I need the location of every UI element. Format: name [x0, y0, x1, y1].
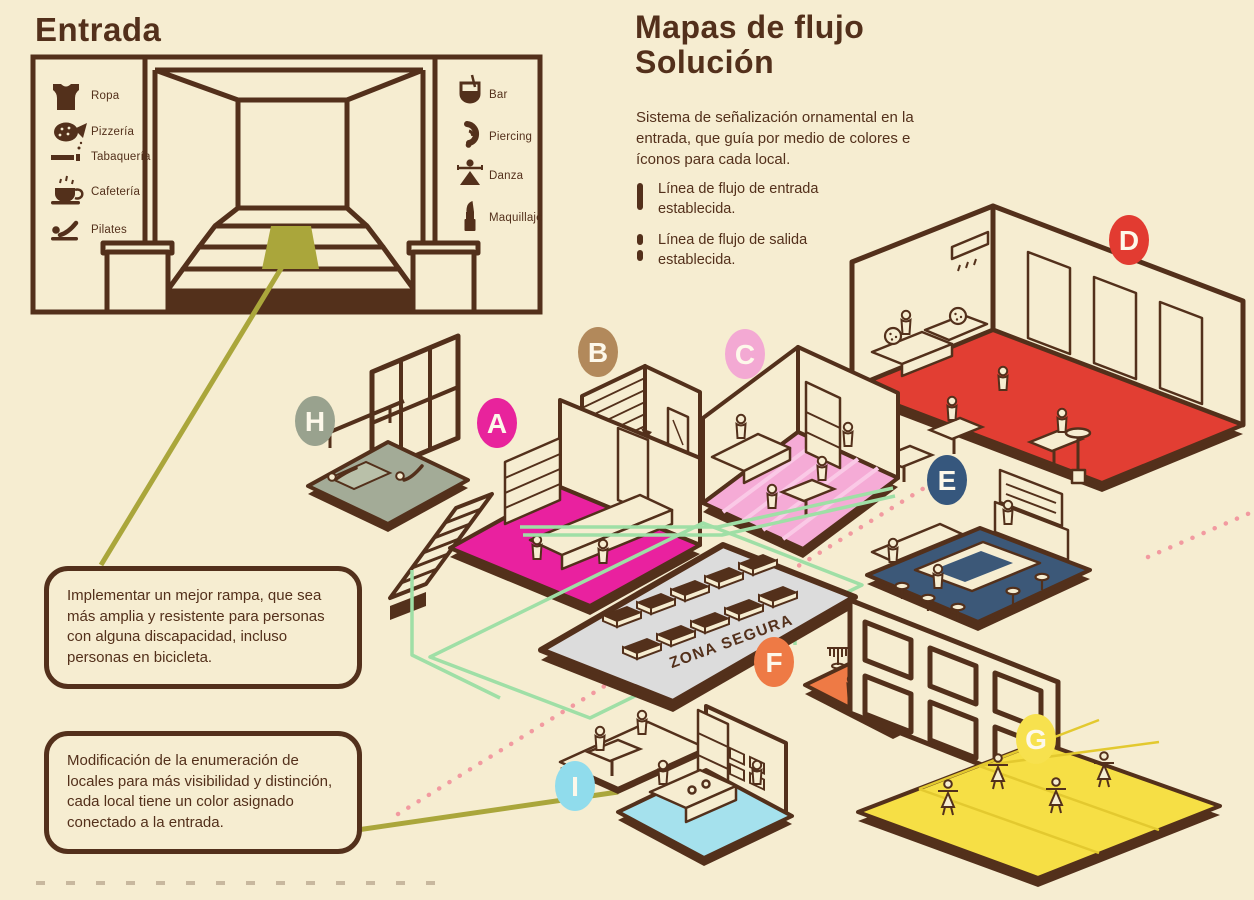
ramp-note-text: Implementar un mejor rampa, que sea más … — [67, 587, 325, 666]
numbering-note-text: Modificación de la enumeración de locale… — [67, 752, 332, 831]
entrance-step-3 — [167, 269, 415, 291]
entrada-title: Entrada — [35, 12, 161, 48]
legend-label-pizzeria: Pizzería — [91, 126, 134, 138]
entrance-step-4 — [152, 291, 430, 312]
badge-room-c: C — [725, 329, 765, 379]
badge-letter-i: I — [571, 771, 579, 802]
flow-legend-salida-label: Línea de flujo de salida establecida. — [658, 231, 873, 270]
badge-room-d: D — [1109, 215, 1149, 265]
right-pillar — [413, 252, 474, 312]
exercise-person-icon — [51, 223, 78, 241]
solution-title-line1: Mapas de flujo — [635, 10, 864, 45]
coffee-cup-icon — [51, 176, 82, 205]
room-e-bar — [867, 470, 1090, 631]
accessibility-ramp-highlight — [262, 226, 319, 269]
infographic-canvas: ZONA SEGURA — [0, 0, 1254, 900]
badge-room-g: G — [1016, 714, 1056, 764]
badge-room-i: I — [555, 761, 595, 811]
badge-letter-c: C — [735, 339, 755, 370]
room-h-floor — [308, 442, 468, 524]
legend-label-tabaqueria: Tabaquería — [91, 151, 151, 163]
flow-legend-salida: Línea de flujo de salida establecida. — [637, 231, 887, 270]
solution-description: Sistema de señalización ornamental en la… — [636, 107, 948, 170]
entrada-legend-left-icons — [51, 84, 87, 241]
legend-label-danza: Danza — [489, 170, 523, 182]
ear-piercing-icon — [466, 124, 476, 148]
legend-label-pilates: Pilates — [91, 224, 127, 236]
badge-letter-e: E — [938, 465, 957, 496]
legend-label-piercing: Piercing — [489, 131, 532, 143]
cropped-footer-text — [36, 881, 436, 885]
entrance-illustration — [103, 70, 478, 312]
dancer-icon — [458, 159, 482, 185]
tank-top-icon — [53, 84, 79, 110]
legend-label-maquillaje: Maquillaje — [489, 212, 543, 224]
left-pillar — [107, 252, 168, 312]
pizza-icon — [54, 123, 87, 142]
dashed-flow-line-icon — [637, 234, 643, 266]
badge-letter-h: H — [305, 406, 325, 437]
badge-room-b: B — [578, 327, 618, 377]
legend-label-cafeteria: Cafetería — [91, 186, 140, 198]
lipstick-icon — [465, 201, 476, 231]
legend-label-ropa: Ropa — [91, 90, 119, 102]
badge-room-h: H — [295, 396, 335, 446]
solution-title: Mapas de flujo Solución — [635, 10, 864, 79]
badge-letter-b: B — [588, 337, 608, 368]
room-d-pizzeria — [852, 206, 1243, 492]
solution-title-line2: Solución — [635, 45, 864, 80]
badge-letter-d: D — [1119, 225, 1139, 256]
cigarette-icon — [51, 142, 82, 161]
entrada-legend-right-icons — [458, 75, 482, 231]
flow-legend-entrada: Línea de flujo de entrada establecida. — [637, 180, 887, 219]
badge-letter-a: A — [487, 408, 507, 439]
bar-glass-icon — [461, 75, 479, 102]
badge-room-e: E — [927, 455, 967, 505]
legend-label-bar: Bar — [489, 89, 508, 101]
badge-letter-f: F — [765, 647, 782, 678]
flow-legend-entrada-label: Línea de flujo de entrada establecida. — [658, 180, 873, 219]
ramp-note-bubble: Implementar un mejor rampa, que sea más … — [44, 566, 362, 689]
solid-flow-line-icon — [637, 183, 643, 210]
bartender-figure — [1004, 501, 1013, 524]
numbering-note-bubble: Modificación de la enumeración de locale… — [44, 731, 362, 854]
room-c-maquillaje — [703, 347, 898, 558]
chef-figure — [902, 311, 911, 334]
cook-figure — [659, 761, 668, 784]
badge-room-a: A — [477, 398, 517, 448]
badge-room-f: F — [754, 637, 794, 687]
badge-letter-g: G — [1025, 724, 1047, 755]
